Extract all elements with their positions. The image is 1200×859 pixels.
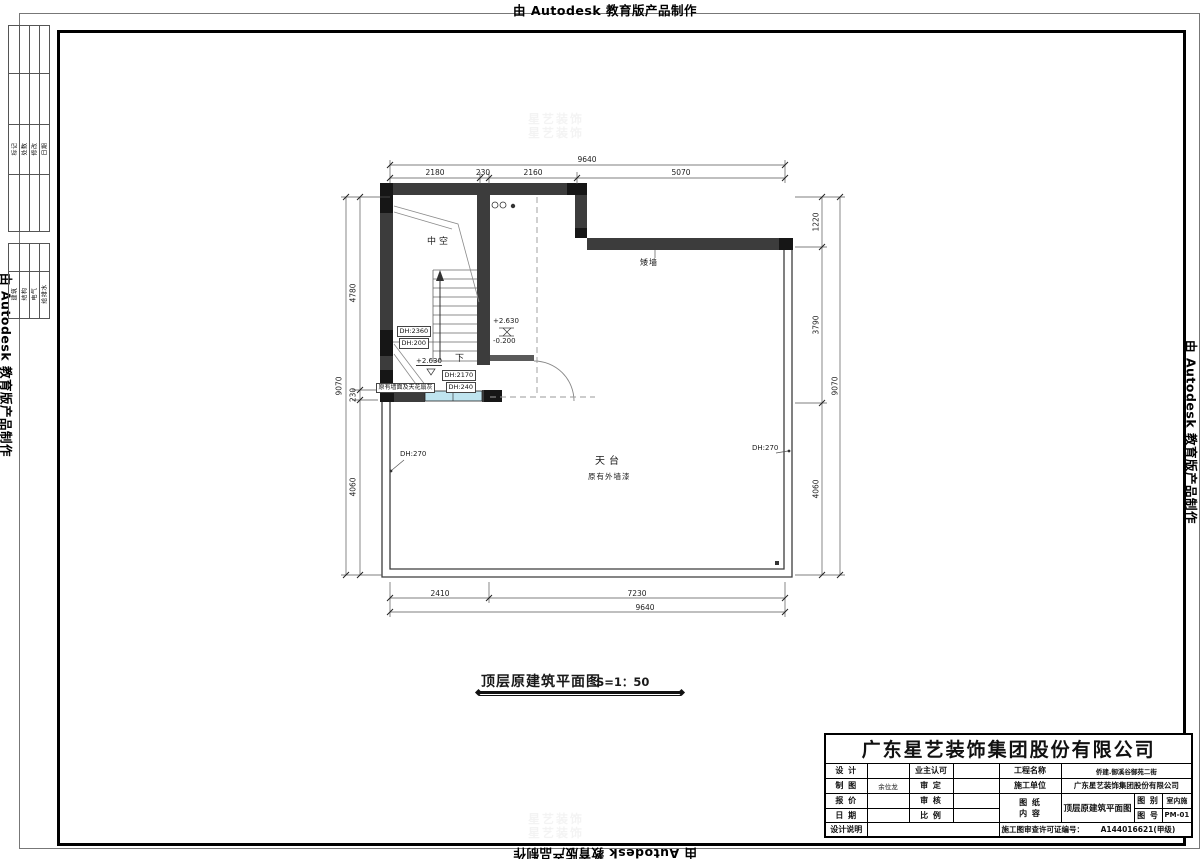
value-sheet-content: 顶层原建筑平面图 [1061,793,1134,822]
level-upper-label: +2.630 [493,317,519,325]
dim-right-segment: 1220 [812,212,821,231]
low-wall-label: 矮墙 [640,257,658,268]
door-height-label: DH:2170 [442,370,476,381]
door-height-label: DH:240 [446,382,476,393]
value-number: PM-01 [1162,808,1192,822]
dim-left-segment: 230 [349,388,358,402]
label-quote: 报 价 [825,793,867,808]
dim-top-segment: 5070 [671,168,690,177]
dim-bottom-total: 9640 [635,603,654,612]
floor-plan-linework [0,0,1200,859]
label-project-name: 工程名称 [999,763,1061,778]
label-check: 审 核 [909,793,953,808]
value-owner-approval [953,763,999,778]
dim-right-segment: 4060 [812,479,821,498]
label-draft: 制 图 [825,778,867,793]
permit-cell: 施工图审查许可证编号： A144016621(甲级) [999,822,1192,837]
label-design: 设 计 [825,763,867,778]
value-approve [953,778,999,793]
value-permit: A144016621(甲级) [1101,825,1176,834]
level-symbol [499,328,514,336]
value-constructor: 广东星艺装饰集团股份有限公司 [1061,778,1192,793]
dim-bottom-segment: 7230 [627,589,646,598]
title-underline [479,695,681,696]
door-height-label: DH:270 [752,444,778,452]
label-owner-approval: 业主认可 [909,763,953,778]
drawing-scale: S=1：50 [596,674,649,690]
company-name: 广东星艺装饰集团股份有限公司 [825,734,1192,763]
dim-bottom-segment: 2410 [430,589,449,598]
value-design [867,763,909,778]
dim-left-total: 9070 [335,376,344,395]
label-number: 图 号 [1134,808,1162,822]
wall-finish-note: 原有墙面及天花扇灰 [376,383,435,393]
terrace-finish-note: 原有外墙漆 [588,471,631,482]
stair-level-label: +2.630 [416,357,442,366]
pipe-symbols [492,202,779,565]
value-quote [867,793,909,808]
stair-level-marker [427,369,435,375]
label-scale: 比 例 [909,808,953,822]
room-label-void: 中空 [427,234,451,247]
door-height-label: DH:2360 [397,326,431,337]
value-project-name: 侨建.御溪谷御苑二街 [1061,763,1192,778]
value-draft: 余位龙 [867,778,909,793]
design-notes-cell [867,822,999,837]
value-scale [953,808,999,822]
drawing-title: 顶层原建筑平面图 [481,671,601,691]
label-sheet-content: 图 纸 内 容 [999,793,1061,822]
cad-sheet: 由 Autodesk 教育版产品制作 由 Autodesk 教育版产品制作 由 … [0,0,1200,859]
door-height-label: DH:270 [400,450,426,458]
label-approve: 审 定 [909,778,953,793]
label-category: 图 别 [1134,793,1162,808]
parapet [382,250,792,577]
dim-right-segment: 3790 [812,315,821,334]
label-content: 内 容 [1002,808,1059,819]
label-constructor: 施工单位 [999,778,1061,793]
dim-top-total: 9640 [577,155,596,164]
title-underline [479,691,681,694]
dim-right-total: 9070 [831,376,840,395]
room-label-terrace: 天台 [595,452,623,467]
door-swing [534,361,574,401]
value-date [867,808,909,822]
label-sheet: 图 纸 [1002,797,1059,808]
dim-top-segment: 2160 [523,168,542,177]
label-date: 日 期 [825,808,867,822]
dim-left-segment: 4780 [349,283,358,302]
value-check [953,793,999,808]
title-block: 广东星艺装饰集团股份有限公司 设 计 业主认可 工程名称 侨建.御溪谷御苑二街 … [824,733,1193,838]
stair-down-label: 下 [455,351,464,364]
level-lower-label: -0.200 [493,337,516,345]
label-permit: 施工图审查许可证编号： [1002,825,1085,834]
dim-top-segment: 230 [476,168,490,177]
leader-lines [392,250,788,470]
dim-left-segment: 4060 [349,477,358,496]
dim-top-segment: 2180 [425,168,444,177]
value-category: 室内施 [1162,793,1192,808]
label-design-notes: 设计说明 [825,822,867,837]
door-height-label: DH:200 [399,338,429,349]
